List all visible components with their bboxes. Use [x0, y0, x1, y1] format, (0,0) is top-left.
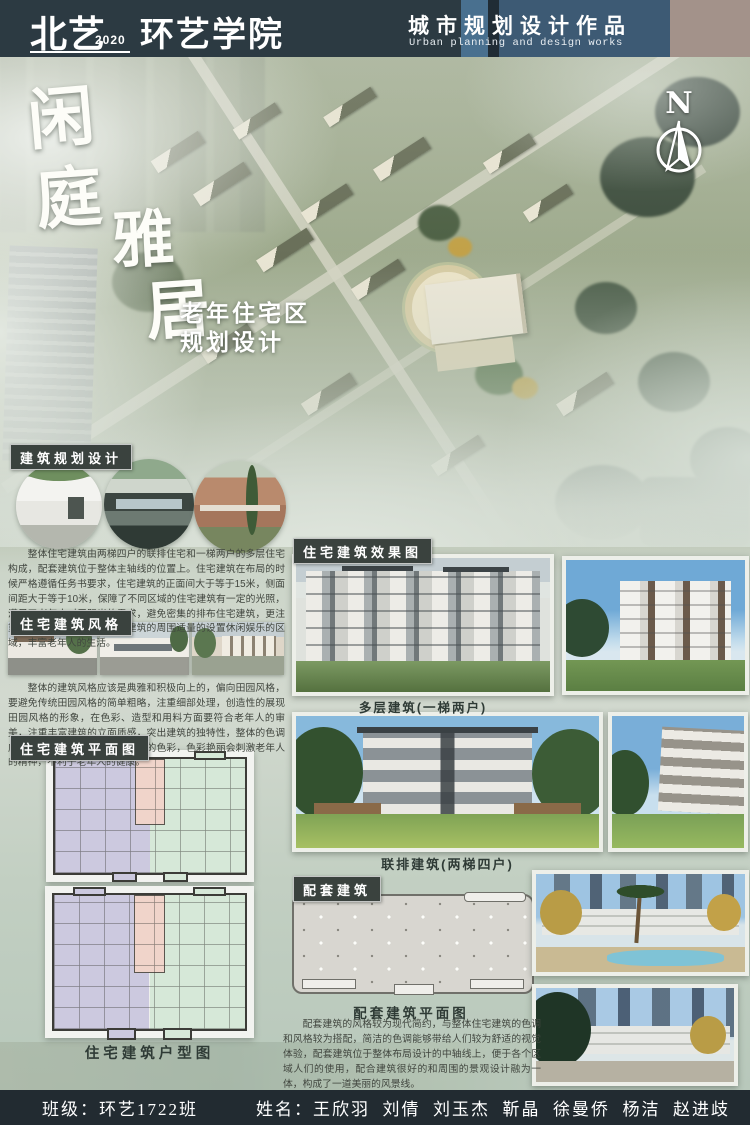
photo-cypress-tree	[246, 465, 258, 535]
golden-tree	[540, 890, 582, 935]
header-taupe-block	[670, 0, 750, 57]
rendering-corner-view	[562, 556, 749, 695]
school-logo-text: 北艺	[30, 4, 106, 58]
student-names-text: 姓名：王欣羽 刘倩 刘玉杰 靳晶 徐曼侨 杨洁 赵进歧	[256, 1095, 730, 1120]
plan-balcony-right	[163, 872, 188, 882]
planning-paragraph: 整体住宅建筑由两梯四户的联排住宅和一梯两户的多层住宅构成，配套建筑位于整体主轴线…	[8, 548, 285, 652]
logo-underline	[30, 51, 130, 53]
class-text: 班级：环艺1722班	[42, 1095, 198, 1120]
section-label-style: 住宅建筑风格	[10, 610, 132, 636]
building-roofline	[357, 727, 539, 733]
masterplan-aerial-rendering	[0, 57, 750, 547]
townhouse-caption: 联排建筑(两梯四户)	[292, 854, 603, 873]
section-label-planning: 建筑规划设计	[10, 444, 132, 470]
building-facade	[620, 581, 731, 662]
photo-balcony-band	[200, 505, 280, 511]
planning-photo-2	[104, 459, 194, 549]
golden-tree	[690, 1016, 726, 1054]
plan-entry-bottom-right	[470, 979, 524, 989]
golden-tree	[707, 894, 740, 931]
section-label-amenity: 配套建筑	[293, 876, 381, 902]
building-facade	[306, 571, 540, 662]
aerial-building-block	[373, 137, 431, 181]
poster-body: 闲 庭 雅 居 老年住宅区 规划设计 N 建筑规划设计 整体住宅建筑由两	[0, 57, 750, 1090]
poster-title-en: Urban planning and design works	[409, 37, 623, 49]
floorplan-caption: 住宅建筑户型图	[45, 1042, 254, 1063]
title-calligraphy-char-3: 雅	[110, 207, 175, 272]
north-compass: N	[648, 89, 710, 182]
amenity-photo-pool	[532, 870, 749, 976]
plan-entry-bottom-center	[394, 984, 434, 995]
tree	[562, 599, 609, 657]
section-label-floorplan: 住宅建筑平面图	[10, 735, 149, 761]
unit-floor-plan-2	[45, 886, 254, 1038]
tree-cluster	[512, 377, 538, 399]
plan-bay-top-left	[73, 887, 105, 896]
section-label-renderings: 住宅建筑效果图	[293, 538, 432, 564]
amenity-photo-building	[532, 984, 738, 1086]
plan-balcony-left	[107, 1028, 136, 1040]
plan-wall-grid	[54, 895, 245, 1029]
logo-year: 2020	[95, 33, 126, 47]
floor-plan-drawing	[52, 893, 247, 1031]
poster: 北艺 2020 环艺学院 城市规划设计作品 Urban planning and…	[0, 0, 750, 1125]
amenity-floor-plan	[292, 894, 534, 994]
building-facade	[363, 732, 533, 814]
header-bar: 北艺 2020 环艺学院 城市规划设计作品 Urban planning and…	[0, 0, 750, 57]
title-calligraphy-char-1: 闲	[25, 82, 97, 154]
building-roofline	[342, 566, 413, 571]
lawn	[566, 660, 745, 691]
building-facade	[657, 727, 748, 816]
amenity-paragraph: 配套建筑的风格较为现代简约，与整体住宅建筑的色调和风格较为搭配，简洁的色调能够带…	[283, 1018, 541, 1090]
tree-cluster	[555, 465, 650, 540]
poster-title-cn: 城市规划设计作品	[408, 10, 632, 40]
aerial-building-block	[301, 183, 353, 223]
aerial-building-block	[556, 372, 614, 416]
aerial-building-block	[256, 228, 314, 272]
planning-photo-1	[16, 463, 102, 549]
plaza-ground	[536, 1061, 734, 1082]
planning-photo-3	[194, 461, 286, 553]
plan-canopy-top-right	[464, 892, 526, 902]
tree-cluster	[638, 352, 710, 412]
photo-window	[68, 497, 84, 519]
rendering-townhouse	[292, 712, 603, 852]
tree	[608, 750, 649, 816]
north-label: N	[648, 89, 710, 119]
subtitle-line-1: 老年住宅区	[180, 302, 310, 325]
college-name: 环艺学院	[140, 7, 284, 56]
compass-icon	[651, 119, 707, 177]
pool	[607, 950, 724, 966]
aerial-building-block	[523, 184, 573, 222]
footer-bar: 班级：环艺1722班 姓名：王欣羽 刘倩 刘玉杰 靳晶 徐曼侨 杨洁 赵进歧	[0, 1090, 750, 1125]
title-calligraphy-char-2: 庭	[34, 163, 104, 233]
photo-glass-band	[116, 499, 182, 509]
plan-entry-bottom-left	[302, 979, 356, 989]
tree-cluster	[418, 205, 460, 241]
building-roofline	[443, 567, 509, 572]
plan-wall-grid	[55, 759, 245, 873]
photo-roof-plants	[16, 469, 102, 483]
hedge-row	[296, 661, 550, 692]
aerial-building-block	[323, 87, 377, 128]
rendering-multistorey	[292, 554, 554, 696]
lawn	[296, 814, 599, 848]
plan-balcony-left	[112, 872, 137, 882]
tree-cluster	[575, 282, 637, 334]
floor-plan-drawing	[53, 757, 247, 875]
plan-balcony-right	[163, 1028, 192, 1040]
rendering-side-view	[608, 712, 748, 852]
amenity-building-roof	[425, 273, 528, 344]
subtitle-line-2: 规划设计	[180, 331, 284, 354]
tree-cluster	[448, 237, 472, 257]
lawn	[612, 814, 744, 848]
foreground-tower-photo	[2, 246, 97, 464]
tree-cluster	[640, 477, 750, 547]
multistorey-caption: 多层建筑(一梯两户)	[292, 697, 554, 716]
plan-bay-top-right	[193, 887, 225, 896]
